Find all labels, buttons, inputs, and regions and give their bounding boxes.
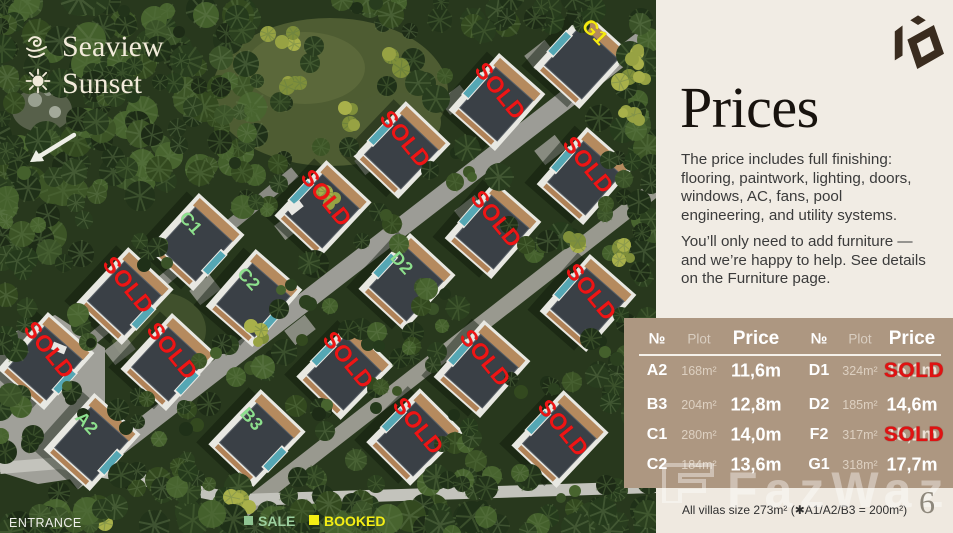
svg-text:Seaview: Seaview [62, 30, 164, 63]
svg-text:BOOKED: BOOKED [324, 513, 385, 529]
svg-text:ENTRANCE: ENTRANCE [9, 516, 82, 530]
svg-text:SALE: SALE [258, 513, 295, 529]
svg-text:Sunset: Sunset [62, 67, 143, 100]
